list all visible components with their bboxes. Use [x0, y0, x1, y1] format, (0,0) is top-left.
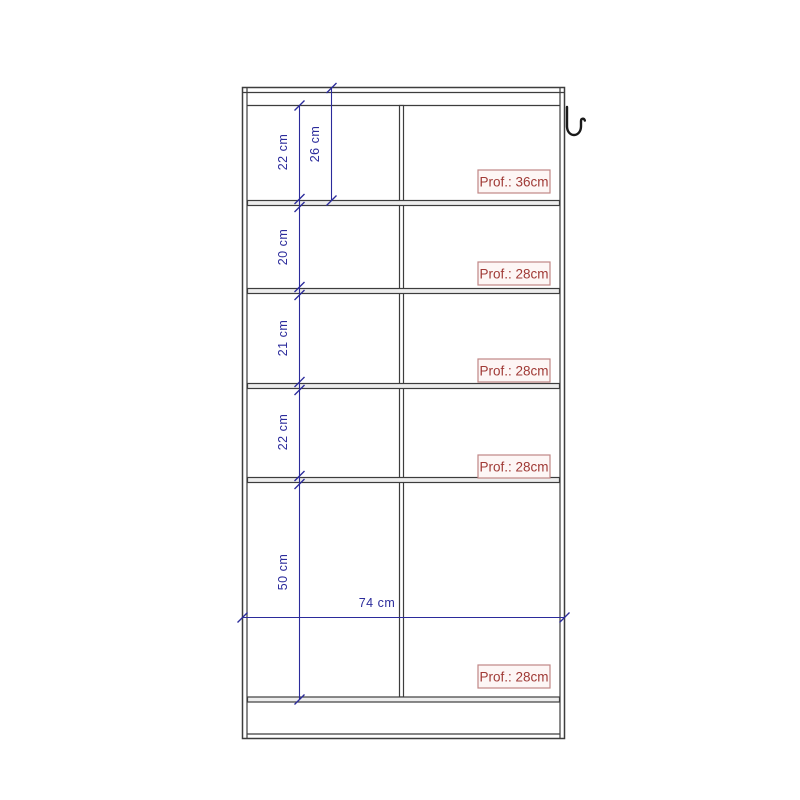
dim-label-20cm: 20 cm: [276, 229, 290, 266]
shelf-5-bottom: [248, 697, 560, 702]
depth-tag-label: Prof.: 28cm: [479, 670, 548, 685]
dim-label-22cm-mid: 22 cm: [276, 414, 290, 451]
center-divider: [400, 106, 404, 698]
depth-tag: Prof.: 28cm: [478, 262, 550, 285]
dimension-labels-group: 22 cm 26 cm 20 cm 21 cm 22 cm 50 cm 74 c…: [276, 126, 395, 610]
shelf-1: [248, 201, 560, 206]
dim-label-50cm: 50 cm: [276, 554, 290, 591]
dim-label-26cm: 26 cm: [308, 126, 322, 163]
dim-label-22cm-top: 22 cm: [276, 134, 290, 171]
furniture-dimension-diagram: 22 cm 26 cm 20 cm 21 cm 22 cm 50 cm 74 c…: [0, 0, 800, 800]
shelf-2: [248, 289, 560, 294]
depth-tag-label: Prof.: 28cm: [479, 364, 548, 379]
depth-tag: Prof.: 36cm: [478, 170, 550, 193]
dim-label-74cm-width: 74 cm: [359, 596, 396, 610]
depth-tag: Prof.: 28cm: [478, 359, 550, 382]
shelf-3: [248, 384, 560, 389]
depth-labels-group: Prof.: 36cm Prof.: 28cm Prof.: 28cm Prof…: [478, 170, 550, 688]
coat-hook-icon: [567, 107, 585, 135]
depth-tag-label: Prof.: 28cm: [479, 267, 548, 282]
depth-tag-label: Prof.: 28cm: [479, 460, 548, 475]
diagram-canvas: 22 cm 26 cm 20 cm 21 cm 22 cm 50 cm 74 c…: [0, 0, 800, 800]
depth-tag: Prof.: 28cm: [478, 455, 550, 478]
depth-tag: Prof.: 28cm: [478, 665, 550, 688]
depth-tag-label: Prof.: 36cm: [479, 175, 548, 190]
dim-label-21cm: 21 cm: [276, 320, 290, 357]
